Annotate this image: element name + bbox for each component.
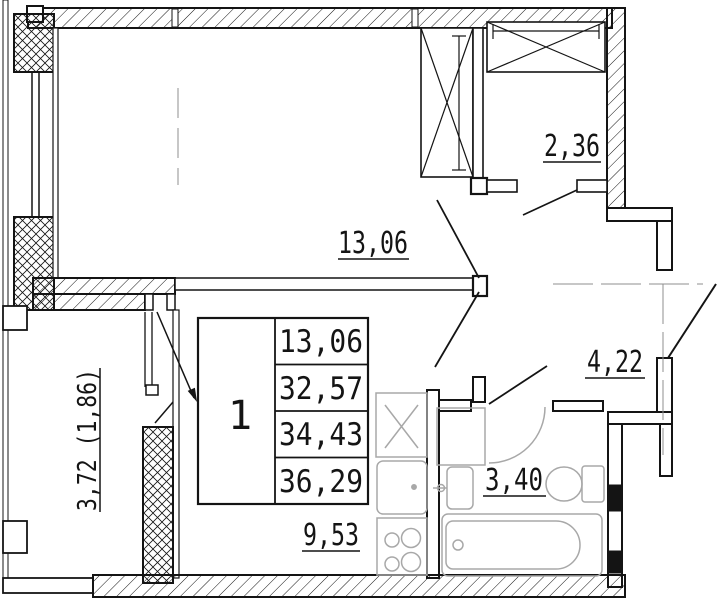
duct-block [609,485,621,511]
door-jamb-living-hall [473,276,487,296]
wall-step-h [607,208,672,221]
wall-closet-bottom [577,180,607,192]
toilet-icon [546,466,604,502]
balcony-pier [3,521,27,553]
stamp-room-count: 1 [228,393,252,439]
floor-plan-page: 13,06 2,36 4,22 3,40 9,53 3,72 (1,86) 1 … [0,0,722,600]
stamp-total-area: 36,29 [279,464,363,500]
stamp-living-area: 13,06 [279,324,363,360]
bathtub-icon [442,514,602,576]
apartment-stamp-table: 1 13,06 32,57 34,43 36,29 [198,318,368,504]
door-leaf-closet [523,190,577,215]
wall-living-balcony [33,278,175,294]
balcony-parapet-bottom [3,578,93,593]
wall-living-kitchen [175,278,473,290]
wall-right-upper [607,8,625,208]
wall-jog [608,412,672,424]
wall-bath-stub [473,377,485,402]
door-leaf-bathroom [489,366,547,404]
wall-top-joint [172,9,178,27]
door-leaf-balcony [155,402,173,423]
window-balcony [145,312,152,387]
wall-balcony-right [143,427,173,583]
washing-machine-icon [437,408,485,465]
window-left [28,72,54,217]
balcony-area-label: 3,72 (1,86) [73,369,103,511]
floor-plan-canvas: 13,06 2,36 4,22 3,40 9,53 3,72 (1,86) 1 … [0,0,722,600]
stamp-area-value: 34,43 [279,417,363,453]
bathroom-area-label: 3,40 [485,463,543,498]
door-jamb [146,385,158,395]
wall-left-slab-line [3,0,8,578]
closet-area-label: 2,36 [544,129,600,164]
duct-block [609,551,621,573]
door-swing-arc-icon [489,407,545,463]
hallway-area-label: 4,22 [587,345,643,380]
kitchen-sink-icon [377,461,427,514]
wardrobe-icon [421,28,473,177]
wall-bath-top [553,401,603,411]
stamp-area-value: 32,57 [279,371,363,407]
door-leaf-entrance [668,284,716,358]
kitchen-cabinet-icon [376,393,427,457]
wall-closet-partition [473,28,483,180]
balcony-pier [3,306,27,330]
door-jamb [145,294,153,310]
stove-icon [377,518,427,575]
wall-closet-bottom [487,180,517,192]
door-jamb [167,294,175,310]
wall-bottom [93,575,625,597]
wall-top-joint [412,9,418,27]
wall-entry-lower [657,358,672,415]
walls [3,0,716,597]
kitchen-area-label: 9,53 [303,518,359,553]
door-jamb [471,178,487,194]
wall-step-v [657,221,672,270]
wall-left-inner-face [53,28,58,278]
living-area-label: 13,06 [338,226,408,261]
wardrobe-icon [487,22,605,72]
wall-living-balcony-lower [33,294,145,310]
wall-pier-topleft [14,14,54,72]
wall-niche [660,424,672,476]
